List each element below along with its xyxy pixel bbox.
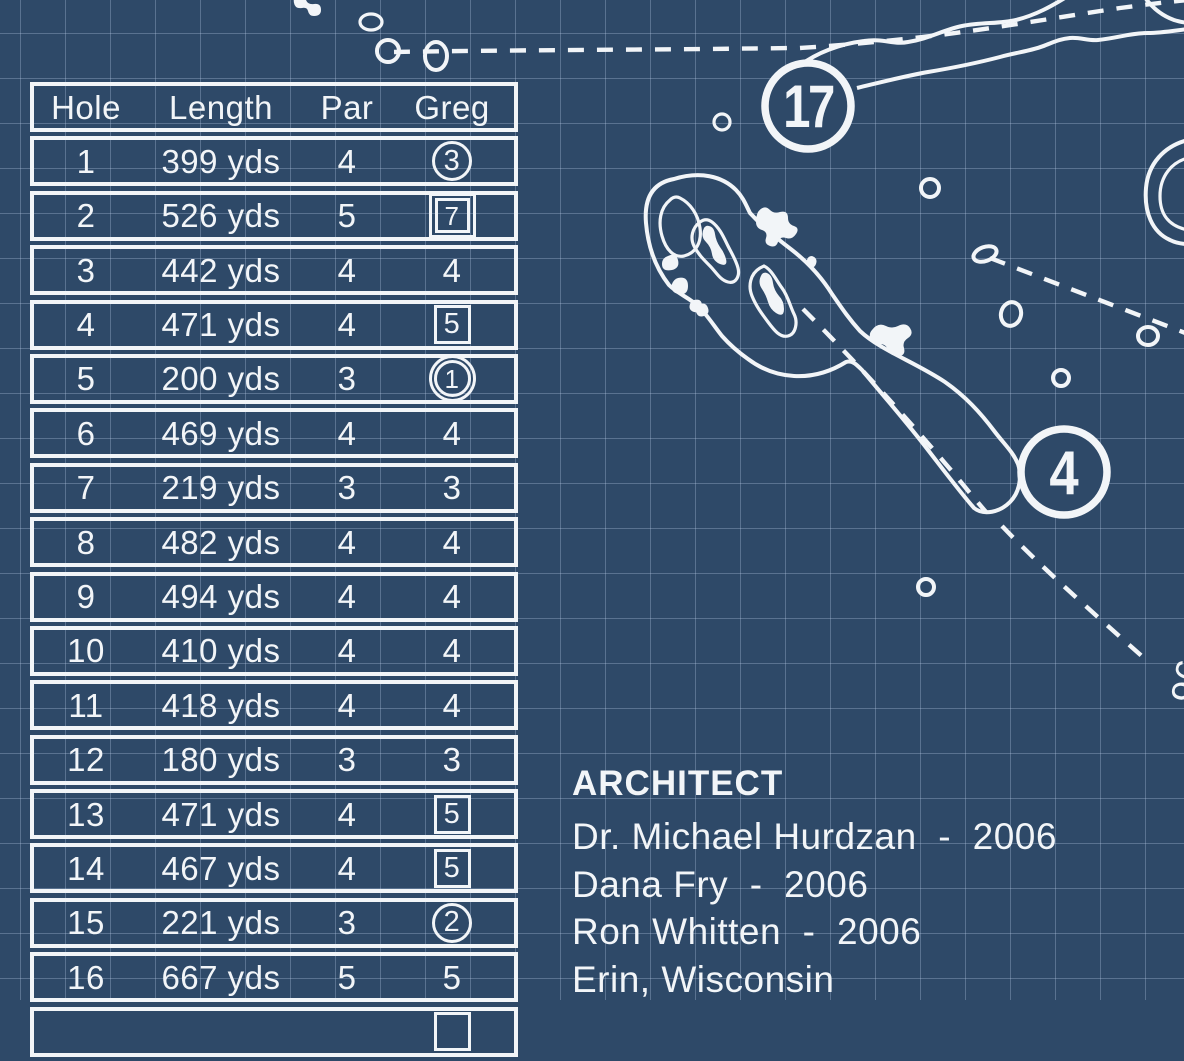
hole-par: 4 [304,417,390,450]
hole-length: 667 yds [138,961,304,994]
hole-length: 399 yds [138,145,304,178]
rough-squiggle [662,255,678,271]
greg-score: 4 [390,526,514,559]
greg-score: 4 [390,689,514,722]
bunker-sand [760,273,785,315]
hole-par: 3 [304,743,390,776]
table-row: 3442 yds44 [30,245,518,295]
hole-number: 1 [34,145,138,178]
fairway-outline [799,0,1068,66]
header-greg: Greg [390,91,514,124]
hole-par: 4 [304,145,390,178]
greg-score: 3 [390,141,514,181]
fairway-outline [857,29,1184,88]
tree-icon [918,579,934,595]
score-marker-inner: 1 [434,360,471,397]
architect-credit-line: Dana Fry - 2006 [572,861,1057,909]
hole-badge-label: 4 [1049,439,1078,508]
greg-score: 5 [390,961,514,994]
yardage-label: 96 [1162,656,1184,705]
hole-length: 200 yds [138,362,304,395]
hole-length: 469 yds [138,417,304,450]
table-row: 15221 yds32 [30,898,518,948]
score-marker-square: 5 [434,795,471,834]
table-row: 10410 yds44 [30,626,518,676]
hole-length: 467 yds [138,852,304,885]
greg-score: 4 [390,417,514,450]
table-row: 16667 yds55 [30,952,518,1002]
greg-score: 5 [390,305,514,344]
green-inner-contour [1160,158,1184,230]
hole-length: 471 yds [138,308,304,341]
architect-credits: Dr. Michael Hurdzan - 2006Dana Fry - 200… [572,813,1057,1003]
table-row: 5200 yds31 [30,354,518,404]
score-marker-inner: 7 [435,198,470,233]
hole-number: 12 [34,743,138,776]
score-marker-square: 5 [434,849,471,888]
tree-icon [425,42,447,70]
score-marker-double-circle: 1 [429,355,476,402]
hole-length: 219 yds [138,471,304,504]
bunker-sand [702,226,726,265]
hole-number: 13 [34,798,138,831]
tree-icon [1138,327,1158,345]
score-marker-circle: 3 [432,141,472,181]
table-row: 11418 yds44 [30,680,518,730]
hole-number: 2 [34,199,138,232]
hole-par: 3 [304,906,390,939]
table-row: 1399 yds43 [30,136,518,186]
hole-par: 3 [304,362,390,395]
fairway-outline [646,175,1020,512]
greg-score: 3 [390,471,514,504]
tree-icon [360,14,382,30]
hole-par: 4 [304,634,390,667]
table-row: 9494 yds44 [30,572,518,622]
header-length: Length [138,91,304,124]
score-marker-double-square: 7 [429,193,476,238]
architect-credit-line: Ron Whitten - 2006 [572,908,1057,956]
hole-par: 4 [304,308,390,341]
table-row: 7219 yds33 [30,463,518,513]
table-row: 6469 yds44 [30,408,518,458]
hole-number: 7 [34,471,138,504]
header-hole: Hole [34,91,138,124]
hole-number: 10 [34,634,138,667]
hole-number: 14 [34,852,138,885]
greg-score: 4 [390,580,514,613]
hole-length: 410 yds [138,634,304,667]
header-par: Par [304,91,390,124]
architect-credit-line: Erin, Wisconsin [572,956,1057,1004]
architect-heading: ARCHITECT [572,764,1057,804]
hole-par: 4 [304,254,390,287]
hole-length: 494 yds [138,580,304,613]
tree-icon [998,300,1024,328]
greg-score: 5 [390,795,514,834]
score-marker-circle: 2 [432,903,472,943]
greg-score: 5 [390,849,514,888]
table-header-row: Hole Length Par Greg [30,82,518,132]
hole-badge-4: 4 [1021,429,1107,515]
hole-number: 6 [34,417,138,450]
greg-score: 1 [390,355,514,402]
hole-length: 482 yds [138,526,304,559]
tree-icon [1053,370,1069,386]
hole-par: 5 [304,961,390,994]
hole-length: 442 yds [138,254,304,287]
table-row [30,1007,518,1057]
scorecard: Hole Length Par Greg 1399 yds432526 yds5… [30,82,518,1061]
rough-squiggle [870,324,912,356]
hole-par: 4 [304,798,390,831]
architect-block: ARCHITECT Dr. Michael Hurdzan - 2006Dana… [572,764,1057,1003]
rough-squiggle [672,278,688,295]
hole-badge-label: 17 [783,72,834,140]
hole-length: 471 yds [138,798,304,831]
score-marker-square: 5 [434,305,471,344]
hole-number: 16 [34,961,138,994]
greg-score: 4 [390,634,514,667]
hole-length: 180 yds [138,743,304,776]
table-row: 13471 yds45 [30,789,518,839]
architect-credit-line: Dr. Michael Hurdzan - 2006 [572,813,1057,861]
greg-score: 3 [390,743,514,776]
hole-number: 4 [34,308,138,341]
tree-icon [714,114,730,130]
hole-number: 15 [34,906,138,939]
scorecard-rows: 1399 yds432526 yds573442 yds444471 yds45… [30,136,518,1056]
greg-score: 7 [390,193,514,238]
tree-icon [921,179,939,197]
rough-squiggle [756,207,798,246]
dashed-line [1002,526,1144,658]
hole-length: 526 yds [138,199,304,232]
hole-par: 4 [304,580,390,613]
table-row: 12180 yds33 [30,735,518,785]
hole-par: 4 [304,852,390,885]
hole-length: 418 yds [138,689,304,722]
bunker-blob [294,0,321,16]
table-row: 2526 yds57 [30,191,518,241]
hole-number: 3 [34,254,138,287]
hole-par: 3 [304,471,390,504]
hole-badge-17: 17 [765,63,851,149]
table-row: 4471 yds45 [30,300,518,350]
hole-par: 4 [304,526,390,559]
table-row: 14467 yds45 [30,843,518,893]
dashed-line [394,48,794,52]
hole-par: 5 [304,199,390,232]
hole-number: 5 [34,362,138,395]
greg-score: 2 [390,903,514,943]
greg-score [390,1012,514,1051]
hole-par: 4 [304,689,390,722]
hole-number: 8 [34,526,138,559]
hole-number: 9 [34,580,138,613]
rough-squiggle [696,304,709,317]
hole-number: 11 [34,689,138,722]
table-row: 8482 yds44 [30,517,518,567]
score-marker-square [434,1012,471,1051]
greg-score: 4 [390,254,514,287]
hole-length: 221 yds [138,906,304,939]
